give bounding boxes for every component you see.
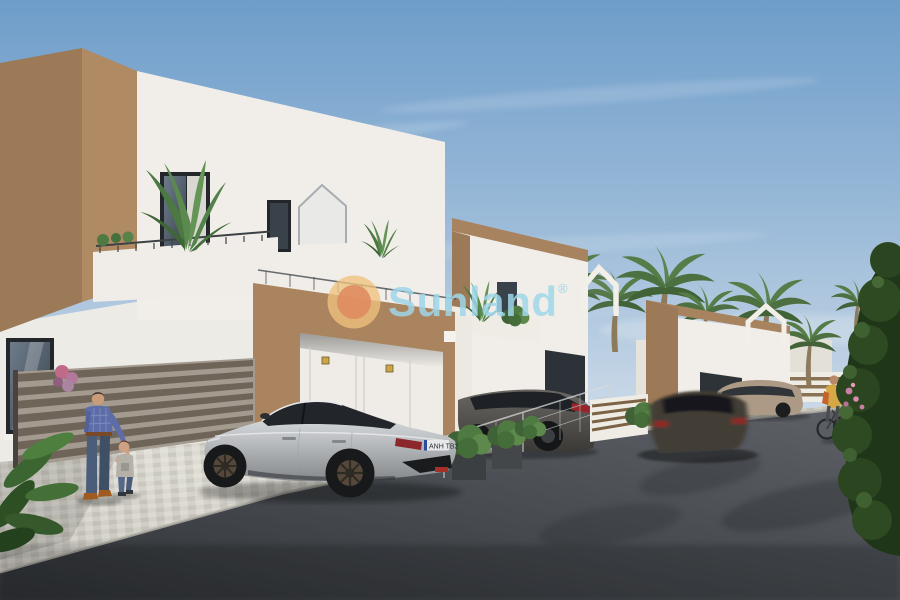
moving-car <box>638 391 758 463</box>
plate-text: ANH TB2 <box>429 444 459 451</box>
audi-rear-wheel <box>326 449 375 498</box>
audi-reflector <box>435 467 448 472</box>
plate-eu-band <box>424 440 427 451</box>
sun-logo-inner <box>337 285 371 319</box>
scene-canvas: ANH TB2 <box>0 0 900 600</box>
man-shoe <box>98 490 112 497</box>
toddler-shoe <box>126 490 133 494</box>
man-belt <box>86 432 112 436</box>
watermark-brand: Sunland <box>388 278 556 325</box>
beige-suv-wheel <box>776 403 791 418</box>
audi-front-wheel <box>204 445 247 488</box>
man-shoe <box>83 493 98 500</box>
man-leg <box>86 436 97 493</box>
render-image: ANH TB2 <box>0 0 900 600</box>
fence-post <box>13 370 18 468</box>
wall-vent <box>444 331 456 342</box>
audi-door-handle <box>332 440 346 443</box>
audi-mirror <box>260 413 270 419</box>
door-fixture <box>322 357 329 364</box>
watermark-registered: ® <box>558 281 568 296</box>
villa1-brown-side <box>0 48 82 332</box>
door-fixture <box>386 365 393 372</box>
moving-car-taillight <box>654 421 668 427</box>
moving-car-taillight <box>732 418 746 424</box>
man-leg <box>99 436 110 490</box>
audi-door-handle <box>282 437 296 440</box>
toddler-shirt-print <box>121 463 129 471</box>
watermark: Sunland ® <box>328 276 569 329</box>
toddler-shoe <box>118 492 126 496</box>
toddler-leg <box>118 477 125 492</box>
